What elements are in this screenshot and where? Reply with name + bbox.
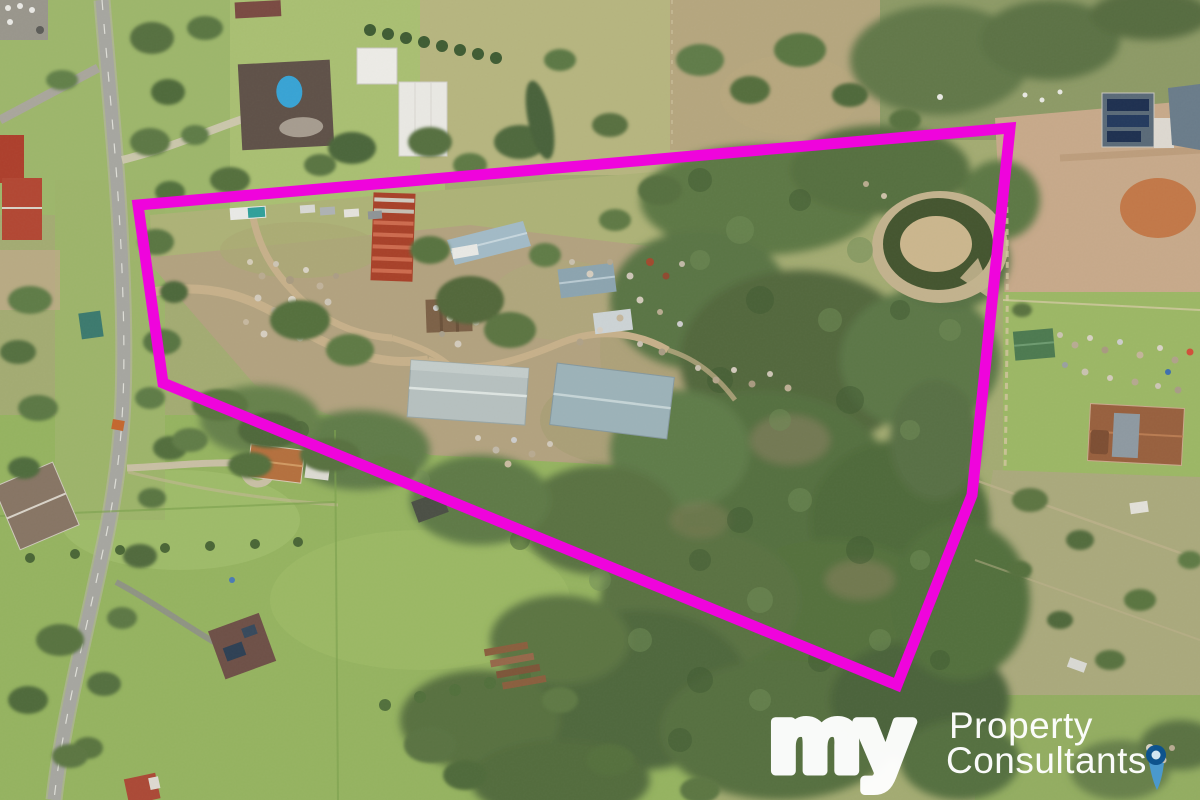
photo-grain xyxy=(0,0,1200,800)
logo-script-my: my xyxy=(768,688,914,793)
logo-word-consultants: Consultants xyxy=(946,740,1147,781)
aerial-property-photo: my Property Consultants xyxy=(0,0,1200,800)
photo-scene xyxy=(0,0,1200,800)
